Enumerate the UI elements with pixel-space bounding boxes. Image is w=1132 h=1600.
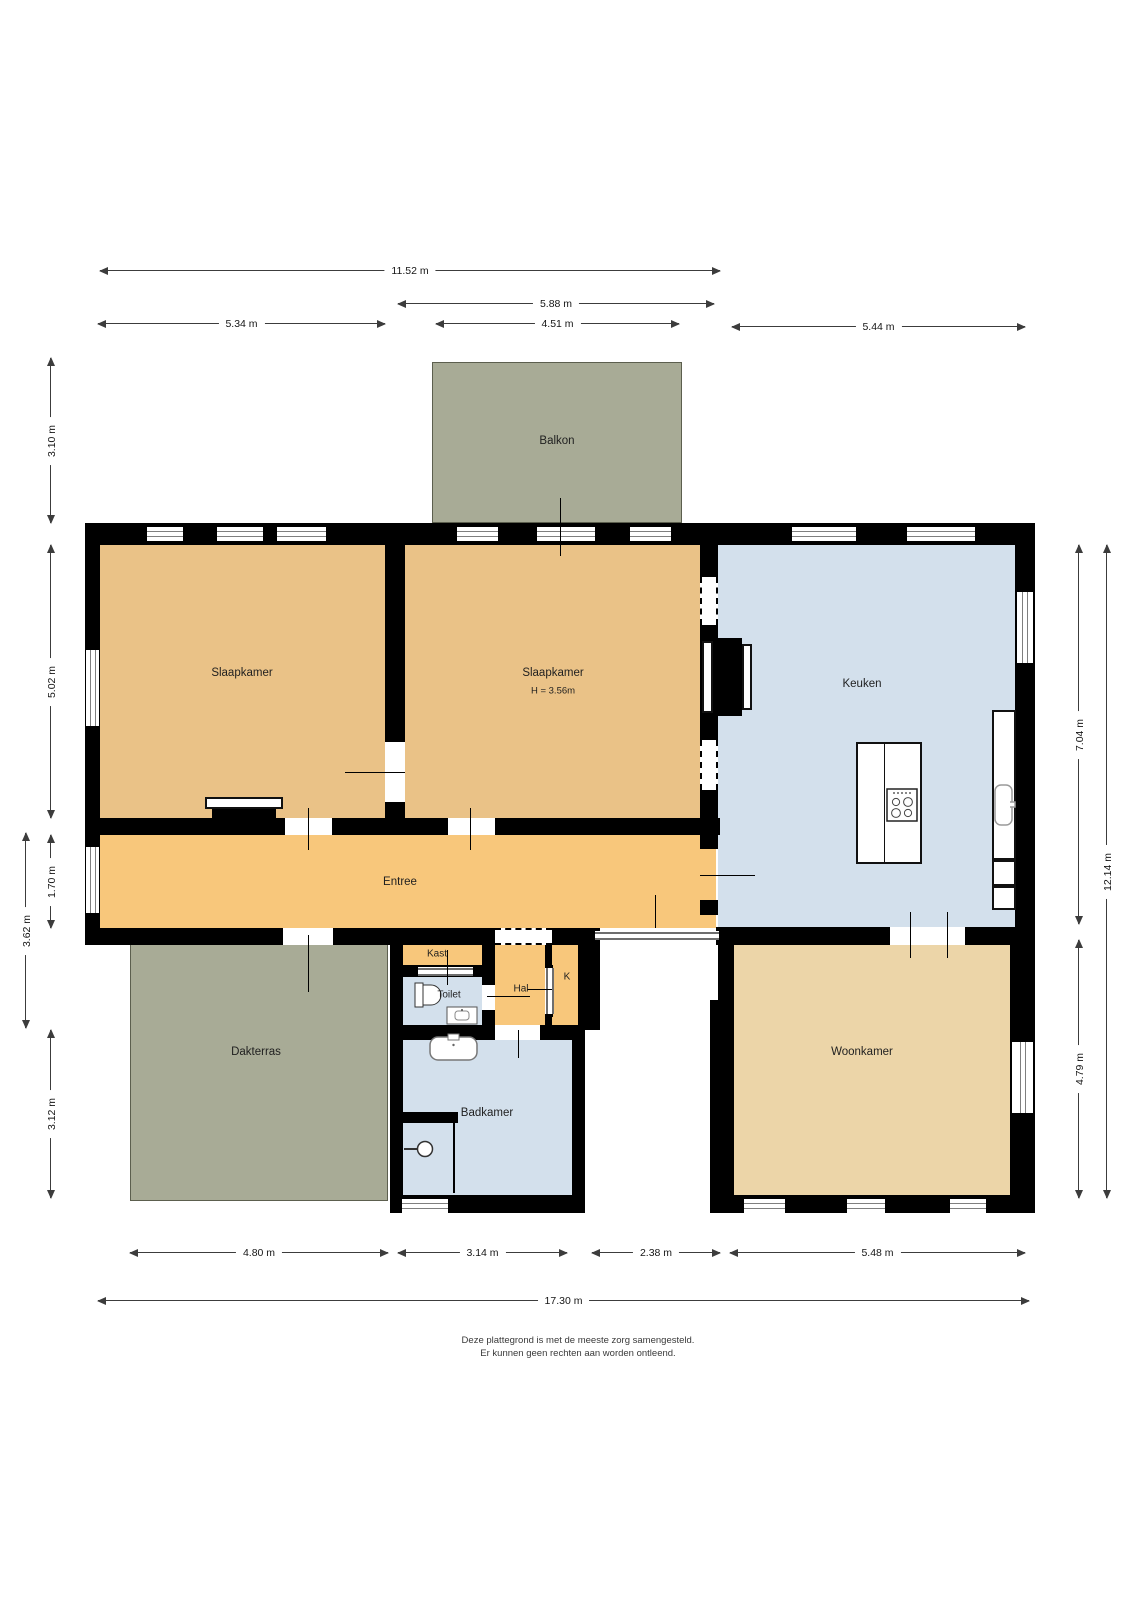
wall-recess	[742, 644, 752, 710]
dimension-bottom-woonkamer: 5.48 m	[730, 1252, 1025, 1253]
door-tick	[700, 875, 755, 876]
dimension-label: 5.34 m	[218, 318, 264, 330]
dimension-label: 5.44 m	[855, 321, 901, 333]
disclaimer-line-1: Deze plattegrond is met de meeste zorg s…	[462, 1334, 695, 1347]
dimension-label: 11.52 m	[384, 265, 435, 277]
dimension-label: 3.12 m	[46, 1090, 58, 1138]
door-tick	[345, 772, 405, 773]
dimension-label: 1.70 m	[46, 857, 58, 905]
disclaimer: Deze plattegrond is met de meeste zorg s…	[462, 1334, 695, 1360]
wall	[482, 1010, 495, 1025]
dimension-label: 3.62 m	[21, 906, 33, 954]
dimension-right-keuken: 7.04 m	[1078, 545, 1079, 924]
window	[628, 527, 673, 541]
open-passage	[700, 577, 718, 625]
room-slaapkamer-2	[405, 545, 700, 818]
window	[400, 1199, 450, 1213]
dimension-bottom-terras: 4.80 m	[130, 1252, 388, 1253]
door-tick	[487, 996, 530, 997]
dimension-right-total: 12.14 m	[1106, 545, 1107, 1198]
room-label-woonkamer: Woonkamer	[831, 1046, 893, 1058]
dimension-bottom-total: 17.30 m	[98, 1300, 1029, 1301]
dimension-label: 5.88 m	[533, 298, 579, 310]
shower-icon	[404, 1138, 436, 1160]
dimension-top-keuken: 5.44 m	[732, 326, 1025, 327]
dimension-label: 4.79 m	[1074, 1045, 1086, 1093]
dimension-left-mid: 3.62 m	[25, 833, 26, 1028]
wall	[572, 1040, 585, 1213]
wall	[482, 943, 495, 985]
room-woonkamer	[734, 945, 1010, 1195]
dimension-label: 4.80 m	[236, 1247, 282, 1259]
window	[215, 527, 265, 541]
room-k	[552, 945, 578, 1025]
sliding-door	[415, 967, 476, 975]
dimension-left-terras: 3.12 m	[50, 1030, 51, 1198]
window	[535, 527, 597, 541]
door-tick	[910, 912, 911, 958]
window	[742, 1199, 787, 1213]
dimension-top-balkon: 4.51 m	[436, 323, 679, 324]
door-tick	[947, 912, 948, 958]
dimension-top-bed1: 5.34 m	[98, 323, 385, 324]
kitchen-cabinet	[992, 886, 1016, 910]
dimension-right-woonkamer: 4.79 m	[1078, 940, 1079, 1198]
window	[845, 1199, 887, 1213]
window	[1012, 1040, 1033, 1115]
room-label-balkon: Balkon	[539, 435, 574, 447]
door-tick	[527, 989, 552, 990]
room-keuken	[718, 545, 1015, 927]
room-label-slaapkamer-2: Slaapkamer	[522, 667, 583, 679]
dimension-label: 5.02 m	[46, 657, 58, 705]
window	[1017, 590, 1033, 665]
dimension-left-balkon: 3.10 m	[50, 358, 51, 523]
room-label-slaapkamer-1: Slaapkamer	[211, 667, 272, 679]
door-tick	[470, 808, 471, 850]
bath-sink-icon	[429, 1033, 478, 1061]
open-passage	[700, 740, 718, 790]
window	[790, 527, 858, 541]
chimney-wall	[712, 638, 742, 716]
floor-plan-canvas: Balkon Slaapkamer Slaapkamer H = 3.56m K…	[0, 0, 1132, 1600]
dimension-label: 4.51 m	[534, 318, 580, 330]
stove-icon	[886, 788, 918, 822]
window	[145, 527, 185, 541]
door-tick	[308, 808, 309, 850]
kitchen-cabinet	[992, 860, 1016, 886]
room-label-dakterras: Dakterras	[231, 1046, 281, 1058]
dimension-label: 3.10 m	[46, 416, 58, 464]
room-dakterras	[130, 943, 388, 1201]
door-opening	[890, 927, 965, 945]
dimension-label: 17.30 m	[538, 1295, 590, 1307]
dimension-bottom-notch: 2.38 m	[592, 1252, 720, 1253]
kitchen-sink-icon	[993, 782, 1016, 828]
room-label-entree: Entree	[383, 876, 417, 888]
window	[275, 527, 328, 541]
door-tick	[308, 935, 309, 992]
built-in-closet	[205, 797, 283, 809]
wall	[700, 835, 718, 849]
door-opening	[448, 818, 495, 835]
window	[948, 1199, 988, 1213]
dimension-label: 7.04 m	[1074, 710, 1086, 758]
door-tick	[518, 1030, 519, 1058]
dimension-top-mid: 5.88 m	[398, 303, 714, 304]
door-tick	[447, 950, 448, 985]
wall	[718, 945, 734, 1213]
wall	[540, 1025, 585, 1040]
island-divider	[884, 744, 885, 862]
wall	[390, 943, 403, 1213]
shower-partition-wall	[403, 1112, 458, 1123]
wall	[212, 809, 276, 818]
wall	[716, 927, 1035, 945]
dimension-label: 3.14 m	[459, 1247, 505, 1259]
wall	[710, 1000, 718, 1213]
window	[905, 527, 977, 541]
dimension-top-total: 11.52 m	[100, 270, 720, 271]
dimension-label: 12.14 m	[1102, 845, 1114, 899]
disclaimer-line-2: Er kunnen geen rechten aan worden ontlee…	[462, 1347, 695, 1360]
window	[455, 527, 500, 541]
shower-partition	[453, 1123, 455, 1193]
room-label-keuken: Keuken	[842, 678, 881, 690]
room-label-toilet: Toilet	[437, 990, 460, 1001]
dimension-label: 5.48 m	[854, 1247, 900, 1259]
railing	[592, 931, 722, 939]
door-tick	[560, 498, 561, 556]
wall	[578, 928, 600, 1030]
room-label-badkamer: Badkamer	[461, 1107, 513, 1119]
door-opening	[482, 985, 495, 1010]
window	[86, 845, 99, 915]
room-height-note: H = 3.56m	[531, 686, 575, 697]
sliding-door	[545, 965, 553, 1017]
room-label-k: K	[564, 972, 571, 983]
dimension-left-entree: 1.70 m	[50, 835, 51, 928]
room-label-kast: Kast	[427, 949, 447, 960]
dimension-label: 2.38 m	[633, 1247, 679, 1259]
room-label-hal: Hal	[513, 984, 528, 995]
toilet-sink-icon	[446, 1006, 478, 1026]
door-tick	[655, 895, 656, 928]
room-slaapkamer-1	[100, 545, 385, 818]
dimension-bottom-badkamer: 3.14 m	[398, 1252, 567, 1253]
open-passage	[495, 928, 552, 945]
wall	[700, 900, 718, 915]
window	[86, 648, 99, 728]
wall	[85, 818, 720, 835]
dimension-left-bed: 5.02 m	[50, 545, 51, 818]
wall-recess	[702, 641, 713, 713]
